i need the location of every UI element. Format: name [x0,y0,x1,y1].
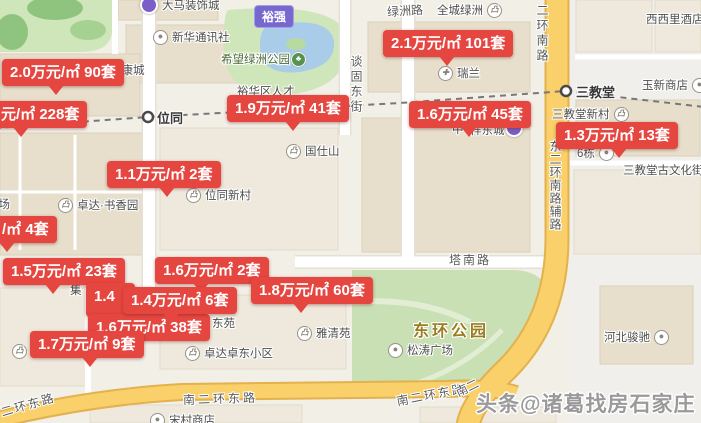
poi-label: 大马装饰城 [162,0,220,13]
price-label-text: 1.1万元/㎡ 2套 [115,166,213,183]
road-label-erhuan-nan: 二环南路 [534,4,551,64]
price-label[interactable]: 1.1万元/㎡ 2套 [107,161,221,188]
building-icon: 凸 [186,188,201,203]
pointer [48,85,64,95]
road-label-nan-erhuan-1: 南二环东路 [183,389,259,409]
price-label-text: 1.7万元/㎡ 9套 [38,336,136,353]
price-label-text: 1.3万元/㎡ 13套 [564,127,670,144]
poi-guwenhuajie: 三教堂古文化街 [623,162,701,178]
price-label-text: 元/㎡ 228套 [1,106,79,123]
poi-shuxiangyuan: 卓达·书香园 [77,197,138,213]
area-badge-yuqiang[interactable]: 裕强 [254,5,294,28]
poi-quancheng: 全城绿洲凸 [437,2,502,18]
poi-zhuodong: 卓达卓东小区 [204,345,273,361]
pointer [0,242,15,252]
pointer [82,357,98,367]
poi-songcun: 宋村商店 [169,412,215,423]
building-icon: 凸 [487,3,502,18]
building-icon: 凸 [297,326,312,341]
price-label[interactable]: /㎡ 4套 [0,216,57,243]
price-label-text: 1.9万元/㎡ 41套 [235,100,341,117]
road-label-tanan: 塔南路 [449,251,491,268]
poi-label: 三教堂新村 [552,106,610,122]
price-label[interactable]: 2.1万元/㎡ 101套 [383,30,513,57]
poi-label: 东苑 [212,315,235,331]
building-icon: 凸 [286,144,301,159]
pointer [461,127,477,137]
price-label[interactable]: 元/㎡ 228套 [0,101,87,128]
road-label-tangu: 谈固东街 [348,55,365,115]
pointer [285,121,301,131]
plaza-icon: ● [388,343,403,358]
poi-dongyuan-frag: 东苑 [212,315,235,331]
park-label-donghuan: 东环公园 [413,317,489,341]
poi-sjt-xincun: 三教堂新村凸 [552,106,629,122]
pointer [439,56,455,66]
poi-label: 三教堂古文化街 [623,162,701,178]
price-label-text: 1.6万元/㎡ 2套 [163,262,261,279]
poi-songtao: 松涛广场 [407,342,453,358]
park-tree-icon: ♣ [291,52,306,67]
metro-station-marker-sanjiaotang [561,86,571,96]
poi-weitong-xincun: 位同新村 [205,187,251,203]
road-label-lvzhou: 绿洲路 [386,1,423,20]
building-icon: 凸 [58,198,73,213]
pointer [159,187,175,197]
pointer [611,148,627,158]
poi-damazhuangshi: 大马装饰城 [162,0,220,13]
park-label-xiwang: 希望绿洲公园 [221,51,290,67]
price-label[interactable]: 1.9万元/㎡ 41套 [227,95,349,122]
price-label-text: /㎡ 4套 [2,221,49,238]
poi-label: 玉新商店 [642,77,688,93]
poi-guangchang-frag: 广场 [0,196,10,212]
building-icon: 凸 [12,344,27,359]
price-label-text: 2.0万元/㎡ 90套 [10,64,116,81]
price-label[interactable]: 2.0万元/㎡ 90套 [2,59,124,86]
hospital-icon: ✚ [438,66,453,81]
price-label[interactable]: 1.5万元/㎡ 23套 [3,258,125,285]
poi-junchi: 河北骏驰● [604,329,669,345]
road-label-dong-erhuan-fu: 东二环南路辅路 [547,140,564,231]
price-label[interactable]: 1.3万元/㎡ 13套 [556,122,678,149]
shop-icon: ● [692,78,701,93]
poi-yuxin: 玉新商店● [642,77,701,93]
price-label-text: 1.4万元/㎡ 6套 [131,292,229,309]
agency-icon: ● [153,30,168,45]
price-label-text: 2.1万元/㎡ 101套 [391,35,505,52]
poi-label: 河北骏驰 [604,329,650,345]
pointer [13,127,29,137]
poi-label: 广场 [0,196,10,212]
poi-label: 西西里酒店 [646,11,701,27]
pointer [45,284,61,294]
price-label[interactable]: 1.7万元/㎡ 9套 [30,331,144,358]
building-icon: 凸 [185,346,200,361]
pointer [293,303,309,313]
price-label[interactable]: 1.6万元/㎡ 45套 [409,101,531,128]
price-label-text: 1.8万元/㎡ 60套 [259,282,365,299]
poi-yaqingyuan: 雅清苑 [316,325,351,341]
building-icon: 凸 [614,107,629,122]
price-label-text: 1.6万元/㎡ 45套 [417,106,523,123]
watermark: 头条@诸葛找房石家庄 [476,388,695,418]
price-label[interactable]: 1.8万元/㎡ 60套 [251,277,373,304]
price-label-text: 1.5万元/㎡ 23套 [11,263,117,280]
poi-label: 全城绿洲 [437,2,483,18]
pointer [163,313,179,323]
station-label-sanjiaotang: 三教堂 [576,82,615,101]
poi-xixili: 西西里酒店 [646,11,701,27]
shop-icon: ● [654,330,669,345]
map-canvas[interactable]: 绿洲路 谈固东街 二环南路 东二环南路辅路 塔南路 南二环东路 南二环东路 二环… [0,0,701,423]
station-label-weitong: 位同 [157,108,183,127]
poi-guoshishan: 国仕山 [305,143,340,159]
price-label-text: 1.4 [94,288,115,305]
shop-icon: ● [150,413,165,423]
metro-station-marker-weitong [143,112,153,122]
poi-xinhua: 新华通讯社 [172,29,230,45]
poi-ruilan: 瑞兰 [457,65,480,81]
price-label[interactable]: 1.4万元/㎡ 6套 [123,287,237,314]
